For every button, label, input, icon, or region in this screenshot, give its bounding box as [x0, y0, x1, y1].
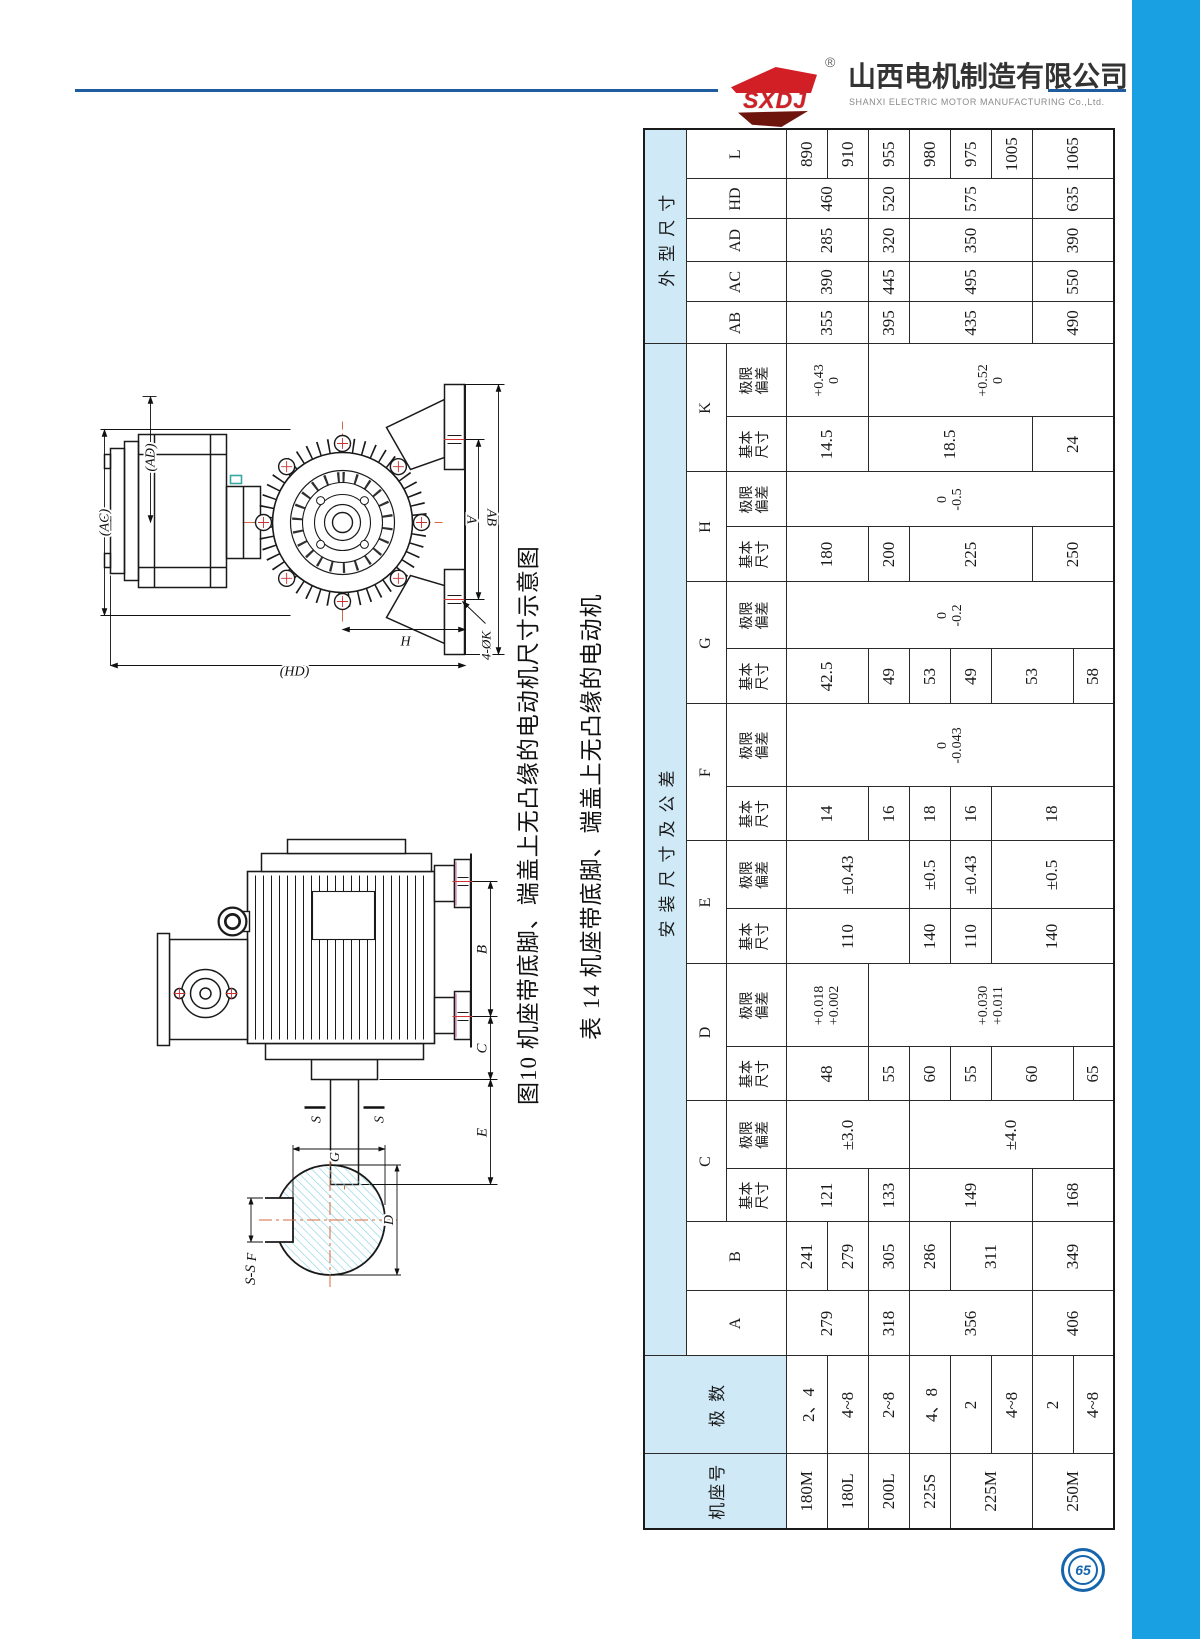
company-name-en: SHANXI ELECTRIC MOTOR MANUFACTURING Co.,…: [849, 97, 1105, 107]
data-cell: 350: [909, 219, 1032, 262]
nameplate: [313, 892, 375, 940]
shaft-section-view: F G D S-S: [235, 1135, 405, 1305]
header-cell: AD: [686, 219, 786, 262]
data-cell: 149: [909, 1169, 1032, 1222]
data-cell: 406: [1032, 1291, 1114, 1356]
header-cell: 基本尺寸: [726, 417, 786, 472]
header-cell: AB: [686, 302, 786, 344]
data-cell: 133: [868, 1169, 909, 1222]
data-cell: 349: [1032, 1222, 1114, 1291]
dim-label-c: C: [475, 1043, 491, 1054]
data-cell: 225: [909, 527, 1032, 582]
header-cell: 极限偏差: [726, 344, 786, 417]
data-cell: 955: [868, 129, 909, 179]
data-cell: 0-0.2: [786, 582, 1114, 649]
header-cell: 极限偏差: [726, 841, 786, 909]
dim-label-d: D: [382, 1215, 397, 1226]
terminal-box: [105, 435, 261, 588]
feet-side: [435, 854, 473, 1048]
accent-bar: [1132, 0, 1200, 1639]
data-cell: 48: [786, 1047, 868, 1101]
data-cell: 225M: [950, 1454, 1032, 1529]
data-cell: 180M: [786, 1454, 827, 1529]
data-cell: 58: [1073, 649, 1114, 704]
header-cell: F: [686, 704, 726, 841]
header-cell: L: [686, 129, 786, 179]
header-cell: 安装尺寸及公差: [644, 344, 686, 1356]
table-caption: 表 14 机座带底脚、端盖上无凸缘的电动机: [578, 598, 606, 1040]
header-cell: 基本尺寸: [726, 1169, 786, 1222]
data-cell: 286: [909, 1222, 950, 1291]
header-cell: E: [686, 841, 726, 964]
dimension-table-wrap: 机座号极 数安装尺寸及公差外型尺寸ABCDEFGHKABACADHDL基本尺寸极…: [643, 130, 1113, 1530]
data-cell: 49: [950, 649, 991, 704]
data-cell: 395: [868, 302, 909, 344]
data-cell: 53: [991, 649, 1073, 704]
data-cell: 140: [991, 909, 1114, 964]
data-cell: 495: [909, 262, 1032, 302]
motor-end-view-drawing: (AC) (AD) H (HD) A AB 4-ØK: [95, 360, 510, 680]
dim-label-b: B: [475, 945, 491, 954]
logo-base-shape: [738, 111, 808, 127]
header-rule-left: [75, 89, 718, 92]
logo-wordmark: SXDJ: [729, 89, 821, 112]
data-cell: 18: [909, 787, 950, 841]
data-cell: 490: [1032, 302, 1114, 344]
section-label-s2: S: [373, 1116, 388, 1123]
terminal-box-side: [158, 934, 248, 1046]
motor-frame: [248, 840, 435, 1044]
company-logo: SXDJ: [729, 53, 821, 127]
data-cell: 390: [786, 262, 868, 302]
data-cell: 18.5: [868, 417, 1032, 472]
header-cell: 极限偏差: [726, 582, 786, 649]
dim-label-ac: (AC): [98, 509, 113, 537]
header-cell: G: [686, 582, 726, 704]
header-cell: 机座号: [644, 1454, 786, 1529]
motor-body-circle: [256, 436, 430, 610]
dim-label-ad: (AD): [144, 443, 159, 471]
data-cell: 4~8: [1073, 1356, 1114, 1454]
data-cell: 55: [868, 1047, 909, 1101]
data-cell: 140: [909, 909, 950, 964]
data-cell: 14: [786, 787, 868, 841]
data-cell: 355: [786, 302, 868, 344]
data-cell: +0.430: [786, 344, 868, 417]
dim-label-hd: (HD): [280, 665, 310, 680]
data-cell: 575: [909, 179, 1032, 219]
data-cell: 520: [868, 179, 909, 219]
data-cell: ±3.0: [786, 1101, 909, 1169]
data-cell: 980: [909, 129, 950, 179]
company-name-cn: 山西电机制造有限公司: [848, 62, 1148, 92]
data-cell: 180: [786, 527, 868, 582]
data-cell: 320: [868, 219, 909, 262]
data-cell: 49: [868, 649, 909, 704]
data-cell: 279: [786, 1291, 868, 1356]
data-cell: 55: [950, 1047, 991, 1101]
data-cell: 975: [950, 129, 991, 179]
data-cell: +0.018+0.002: [786, 964, 868, 1047]
data-cell: 110: [786, 909, 909, 964]
data-cell: 2~8: [868, 1356, 909, 1454]
data-cell: 225S: [909, 1454, 950, 1529]
section-title: S-S: [243, 1265, 259, 1285]
motor-side-view-drawing: S S E C B: [140, 690, 515, 1190]
data-cell: 1065: [1032, 129, 1114, 179]
data-cell: 110: [950, 909, 991, 964]
header-cell: AC: [686, 262, 786, 302]
header-cell: D: [686, 964, 726, 1101]
dimension-table: 机座号极 数安装尺寸及公差外型尺寸ABCDEFGHKABACADHDL基本尺寸极…: [643, 128, 1115, 1530]
data-cell: 318: [868, 1291, 909, 1356]
data-cell: 18: [991, 787, 1114, 841]
data-cell: 16: [868, 787, 909, 841]
dim-label-4k: 4-ØK: [479, 630, 494, 660]
data-cell: 65: [1073, 1047, 1114, 1101]
data-cell: 305: [868, 1222, 909, 1291]
data-cell: 356: [909, 1291, 1032, 1356]
data-cell: 2、4: [786, 1356, 827, 1454]
data-cell: 16: [950, 787, 991, 841]
data-cell: 60: [991, 1047, 1073, 1101]
dim-label-ab: AB: [484, 508, 499, 527]
data-cell: 42.5: [786, 649, 868, 704]
data-cell: 241: [786, 1222, 827, 1291]
data-cell: ±0.43: [950, 841, 991, 909]
data-cell: ±4.0: [909, 1101, 1114, 1169]
page-number-badge: 65: [1061, 1548, 1105, 1592]
dimension-labels-side: E C B: [475, 945, 491, 1138]
header-cell: 基本尺寸: [726, 649, 786, 704]
header-cell: A: [686, 1291, 786, 1356]
data-cell: 460: [786, 179, 868, 219]
data-cell: 180L: [827, 1454, 868, 1529]
figure-caption: 图10 机座带底脚、端盖上无凸缘的电动机尺寸示意图: [515, 575, 545, 1105]
data-cell: 285: [786, 219, 868, 262]
data-cell: 445: [868, 262, 909, 302]
data-cell: 200L: [868, 1454, 909, 1529]
data-cell: ±0.5: [909, 841, 950, 909]
dim-label-e: E: [475, 1128, 491, 1138]
data-cell: 14.5: [786, 417, 868, 472]
dim-label-a: A: [464, 514, 479, 524]
data-cell: 890: [786, 129, 827, 179]
data-cell: 435: [909, 302, 1032, 344]
data-cell: 635: [1032, 179, 1114, 219]
page-number: 65: [1068, 1555, 1098, 1585]
catalog-page: SXDJ ® 山西电机制造有限公司 SHANXI ELECTRIC MOTOR …: [0, 0, 1200, 1639]
header-cell: 极限偏差: [726, 964, 786, 1047]
data-cell: 53: [909, 649, 950, 704]
header-cell: 极 数: [644, 1356, 786, 1454]
data-cell: 1005: [991, 129, 1032, 179]
header-cell: 外型尺寸: [644, 129, 686, 344]
data-cell: 168: [1032, 1169, 1114, 1222]
registered-trademark-icon: ®: [825, 54, 835, 70]
data-cell: 550: [1032, 262, 1114, 302]
data-cell: 311: [950, 1222, 1032, 1291]
data-cell: 4~8: [991, 1356, 1032, 1454]
header-cell: 极限偏差: [726, 472, 786, 527]
dim-label-f: F: [245, 1252, 260, 1262]
dim-label-h: H: [399, 635, 411, 650]
data-cell: 250M: [1032, 1454, 1114, 1529]
header-cell: H: [686, 472, 726, 582]
data-cell: 250: [1032, 527, 1114, 582]
data-cell: +0.520: [868, 344, 1114, 417]
dim-label-g: G: [328, 1152, 343, 1162]
data-cell: 4、8: [909, 1356, 950, 1454]
header-cell: 基本尺寸: [726, 787, 786, 841]
section-label-s1: S: [310, 1116, 325, 1123]
header-cell: K: [686, 344, 726, 472]
header-cell: 基本尺寸: [726, 527, 786, 582]
header-cell: C: [686, 1101, 726, 1222]
header-cell: 极限偏差: [726, 704, 786, 787]
data-cell: 2: [950, 1356, 991, 1454]
header-cell: 基本尺寸: [726, 1047, 786, 1101]
data-cell: 4~8: [827, 1356, 868, 1454]
header-cell: 极限偏差: [726, 1101, 786, 1169]
data-cell: 2: [1032, 1356, 1073, 1454]
lifting-eye: [219, 908, 250, 935]
data-cell: 60: [909, 1047, 950, 1101]
header-cell: 基本尺寸: [726, 909, 786, 964]
data-cell: 121: [786, 1169, 868, 1222]
data-cell: ±0.5: [991, 841, 1114, 909]
data-cell: 910: [827, 129, 868, 179]
data-cell: 24: [1032, 417, 1114, 472]
data-cell: 0-0.043: [786, 704, 1114, 787]
data-cell: ±0.43: [786, 841, 909, 909]
data-cell: +0.030+0.011: [868, 964, 1114, 1047]
data-cell: 279: [827, 1222, 868, 1291]
data-cell: 390: [1032, 219, 1114, 262]
data-cell: 200: [868, 527, 909, 582]
header-cell: HD: [686, 179, 786, 219]
header-cell: B: [686, 1222, 786, 1291]
data-cell: 0-0.5: [786, 472, 1114, 527]
